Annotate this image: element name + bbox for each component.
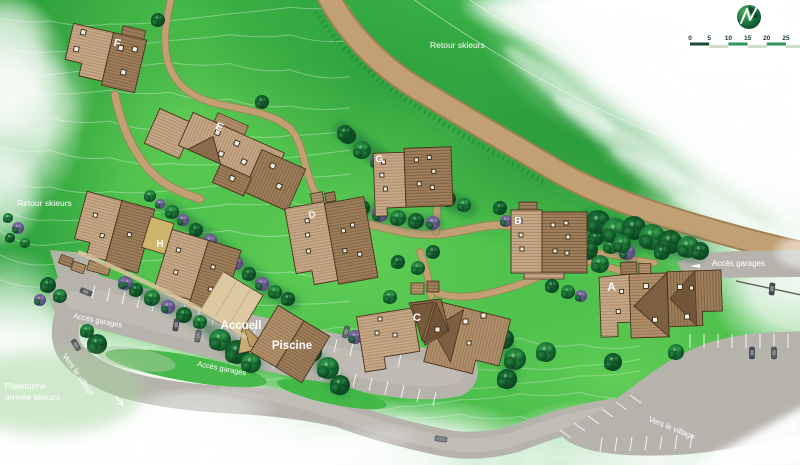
svg-text:G: G <box>375 154 383 165</box>
svg-text:Accès garages: Accès garages <box>712 259 765 268</box>
svg-text:20: 20 <box>763 35 771 42</box>
svg-text:25: 25 <box>782 35 790 42</box>
svg-text:Retour skieurs: Retour skieurs <box>17 198 72 208</box>
svg-text:5: 5 <box>707 35 711 42</box>
svg-text:B: B <box>514 216 521 227</box>
svg-text:Piscine: Piscine <box>272 340 312 352</box>
svg-text:15: 15 <box>744 35 752 42</box>
svg-text:C: C <box>413 312 421 324</box>
svg-text:H: H <box>156 239 163 250</box>
svg-text:Plateforme: Plateforme <box>5 381 46 391</box>
svg-text:0: 0 <box>688 35 692 42</box>
svg-text:Accueil: Accueil <box>221 320 262 332</box>
svg-text:Retour skieurs: Retour skieurs <box>430 40 485 50</box>
svg-text:arrivée skieurs: arrivée skieurs <box>5 392 60 402</box>
svg-text:10: 10 <box>725 35 733 42</box>
svg-text:A: A <box>607 280 616 294</box>
